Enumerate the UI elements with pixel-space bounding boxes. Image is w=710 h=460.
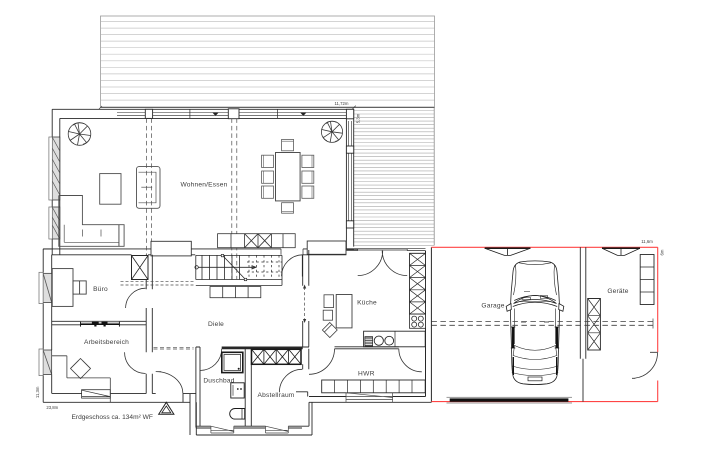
svg-text:Garage: Garage bbox=[481, 302, 504, 309]
svg-text:Duschbad: Duschbad bbox=[203, 377, 234, 384]
svg-text:5,3m: 5,3m bbox=[356, 113, 361, 123]
svg-text:Arbeitsbereich: Arbeitsbereich bbox=[84, 339, 129, 346]
svg-text:HWR: HWR bbox=[358, 370, 375, 377]
svg-text:Diele: Diele bbox=[208, 321, 224, 328]
svg-text:23,8m: 23,8m bbox=[46, 405, 58, 410]
svg-text:Wohnen/Essen: Wohnen/Essen bbox=[181, 182, 228, 189]
svg-text:11,3m: 11,3m bbox=[35, 386, 40, 398]
svg-text:Büro: Büro bbox=[93, 286, 108, 293]
svg-text:11,6m: 11,6m bbox=[641, 239, 653, 244]
svg-text:6m: 6m bbox=[660, 249, 665, 255]
svg-text:11,72m: 11,72m bbox=[334, 101, 348, 106]
svg-text:Abstellraum: Abstellraum bbox=[257, 392, 294, 399]
svg-text:Küche: Küche bbox=[357, 300, 377, 307]
svg-text:Geräte: Geräte bbox=[607, 288, 628, 295]
svg-text:Erdgeschoss ca. 134m² WF: Erdgeschoss ca. 134m² WF bbox=[72, 414, 153, 421]
